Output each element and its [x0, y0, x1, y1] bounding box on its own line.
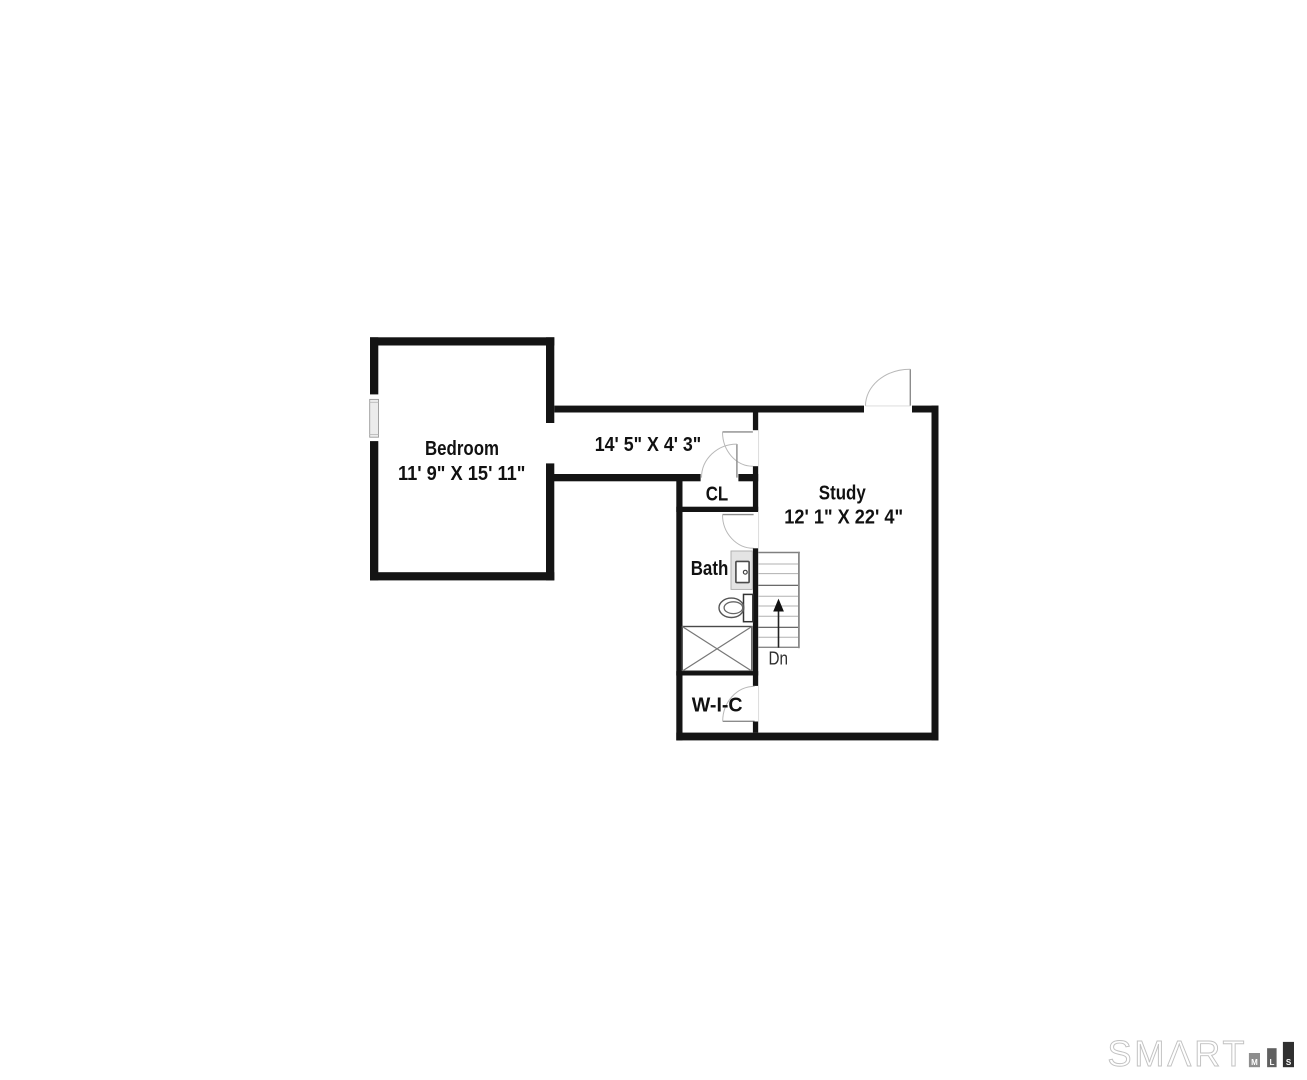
svg-text:SMΛRT: SMΛRT [1108, 1033, 1245, 1074]
svg-text:Dn: Dn [768, 649, 788, 669]
svg-text:Bath: Bath [691, 558, 729, 580]
svg-text:M: M [1251, 1058, 1258, 1067]
svg-text:11' 9" X 15' 11": 11' 9" X 15' 11" [398, 463, 526, 485]
svg-text:Study: Study [819, 482, 867, 504]
svg-text:L: L [1269, 1058, 1274, 1067]
svg-text:12' 1" X 22' 4": 12' 1" X 22' 4" [784, 506, 903, 528]
svg-text:14' 5" X 4' 3": 14' 5" X 4' 3" [595, 434, 702, 456]
svg-text:Bedroom: Bedroom [425, 438, 499, 460]
svg-text:S: S [1286, 1058, 1292, 1067]
svg-text:W-I-C: W-I-C [692, 694, 743, 716]
svg-text:CL: CL [706, 483, 729, 505]
